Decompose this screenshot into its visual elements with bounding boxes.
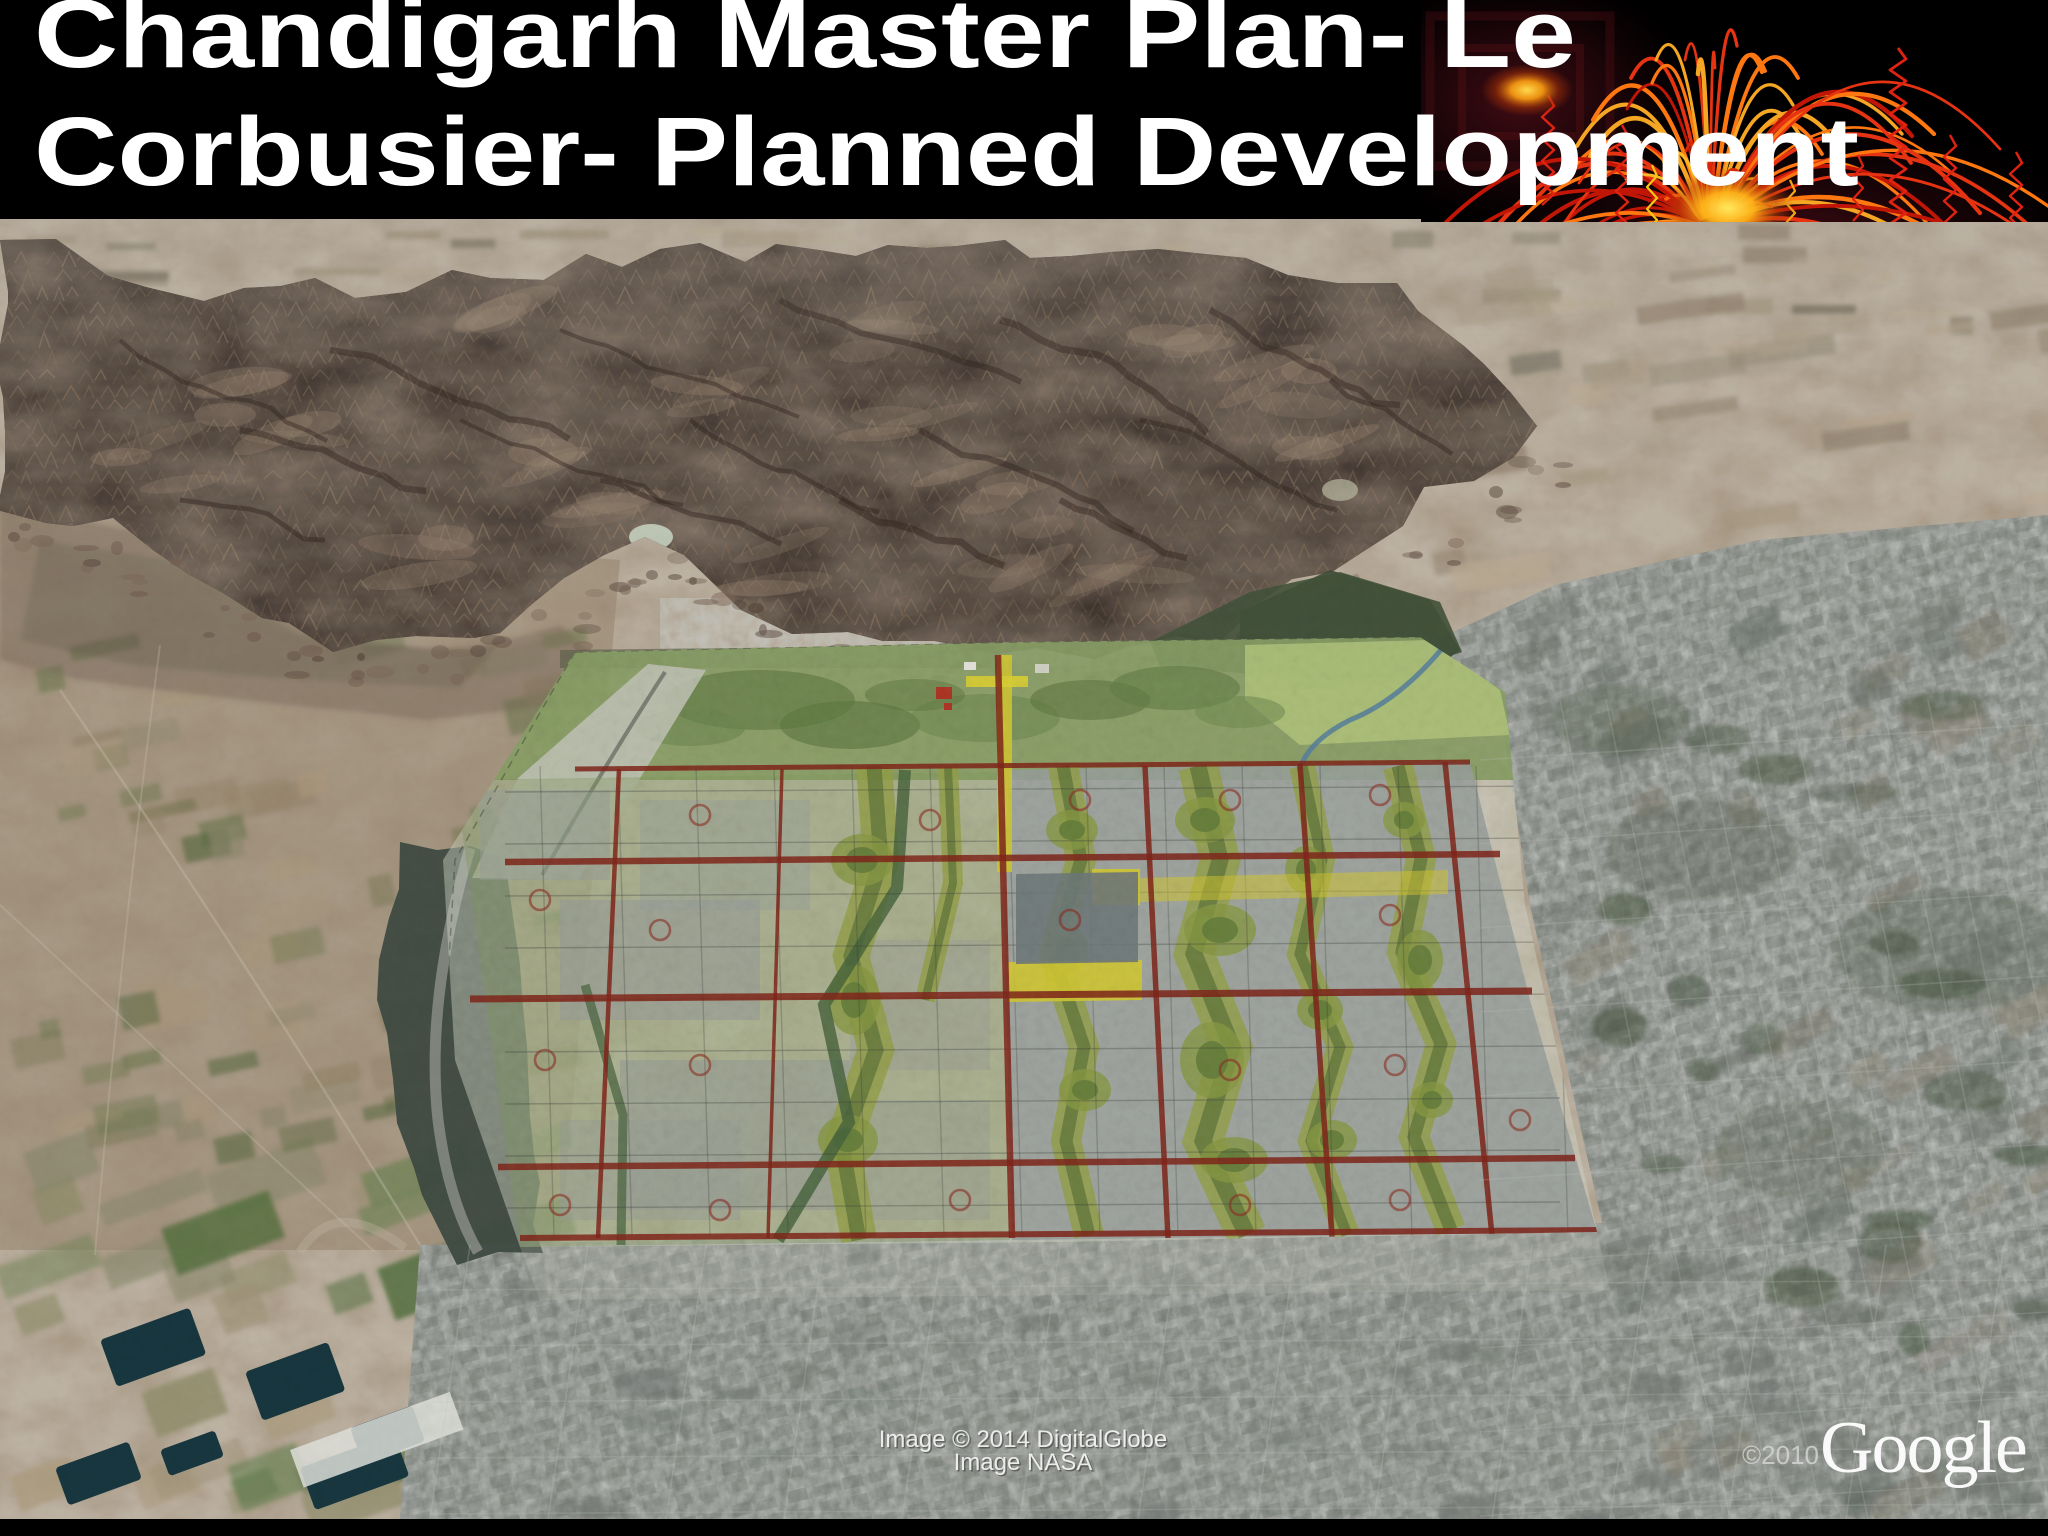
svg-text:Chandigarh Master Plan- Le: Chandigarh Master Plan- Le xyxy=(34,0,1576,88)
svg-text:Image NASA: Image NASA xyxy=(954,1449,1093,1476)
svg-text:Google: Google xyxy=(1820,1407,2026,1489)
svg-text:Corbusier- Planned Development: Corbusier- Planned Development xyxy=(34,97,1859,206)
svg-text:©2010: ©2010 xyxy=(1742,1440,1819,1470)
